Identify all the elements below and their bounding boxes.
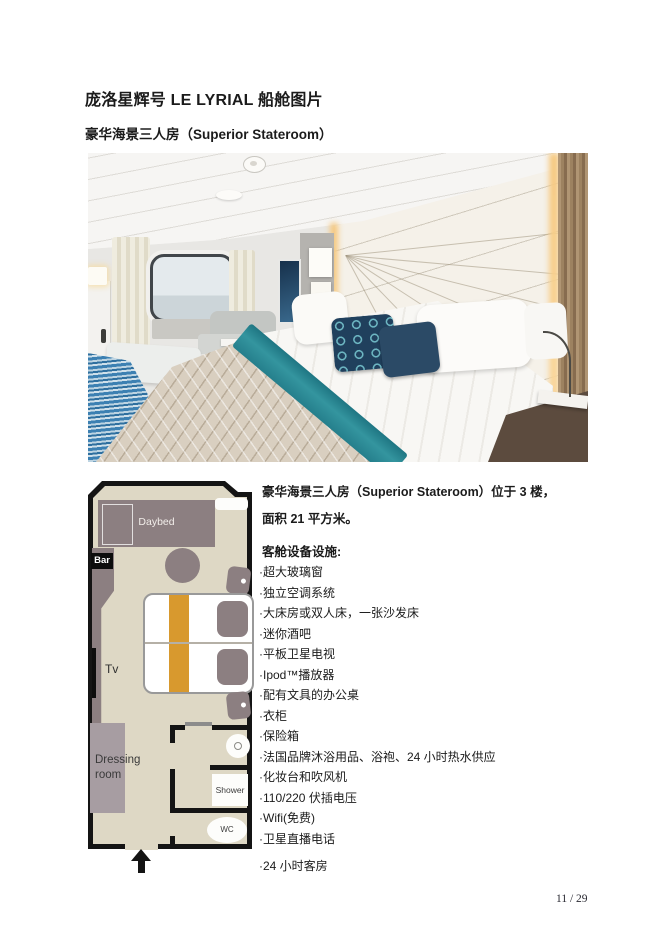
plan-wall [212, 725, 248, 730]
amenities-list: ·超大玻璃窗 ·独立空调系统 ·大床房或双人床，一张沙发床 ·迷你酒吧 ·平板卫… [259, 562, 599, 877]
plan-daybed: Daybed [98, 500, 215, 547]
cabin-photo [88, 153, 588, 462]
plan-door [185, 722, 212, 726]
plan-wall [170, 836, 175, 846]
plan-nightstand [226, 691, 252, 720]
plan-pillow [217, 649, 248, 685]
plan-wall [170, 725, 175, 743]
document-page: 庞洛星辉号 LE LYRIAL 船舱图片 豪华海景三人房（Superior St… [0, 0, 668, 945]
amenity-item: ·平板卫星电视 [259, 644, 599, 665]
amenity-item: ·衣柜 [259, 706, 599, 727]
plan-wall [175, 808, 248, 813]
amenities-heading: 客舱设备设施: [262, 541, 341, 560]
cabin-intro: 豪华海景三人房（Superior Stateroom）位于 3 楼， 面积 21… [262, 479, 592, 533]
plan-daybed-label: Daybed [98, 516, 215, 528]
plan-window [215, 498, 248, 510]
cabin-intro-line1: 豪华海景三人房（Superior Stateroom）位于 3 楼， [262, 479, 592, 506]
plan-wall [170, 769, 175, 813]
plan-nightstand [225, 566, 251, 596]
plan-bar-label: Bar [91, 553, 113, 569]
plan-tv-wall-mark [92, 648, 96, 698]
page-number: 11 / 29 [556, 893, 588, 905]
sunburst-line [346, 231, 570, 256]
amenity-item: ·Ipod™播放器 [259, 665, 599, 686]
amenity-item: ·独立空调系统 [259, 583, 599, 604]
sunburst-line [346, 255, 570, 276]
section-subtitle: 豪华海景三人房（Superior Stateroom） [85, 123, 333, 143]
amenity-item: ·卫星直播电话 [259, 829, 599, 850]
plan-dressing-label: Dressing room [95, 753, 161, 783]
amenity-item: ·配有文具的办公桌 [259, 685, 599, 706]
amenity-item: ·24 小时客房 [259, 856, 599, 877]
teal-pillow [378, 321, 441, 379]
cabin-floor-plan: Daybed Bar Tv Dressing room Shower WC [88, 481, 252, 873]
ceiling-light [216, 190, 242, 200]
amenity-item: ·大床房或双人床，一张沙发床 [259, 603, 599, 624]
plan-wall [210, 765, 248, 770]
plan-bed-divider [145, 642, 252, 644]
plan-tv-label: Tv [105, 662, 118, 676]
plan-sink [226, 734, 250, 758]
curtain [112, 237, 150, 351]
amenity-item: ·保险箱 [259, 726, 599, 747]
amenity-item: ·Wifi(免费) [259, 808, 599, 829]
plan-pillow [217, 601, 248, 637]
amenity-item: ·化妆台和吹风机 [259, 767, 599, 788]
entry-arrow-icon [138, 860, 145, 873]
plan-beds [143, 593, 254, 694]
amenity-item: ·110/220 伏插电压 [259, 788, 599, 809]
page-title: 庞洛星辉号 LE LYRIAL 船舱图片 [85, 86, 323, 110]
amenity-item: ·迷你酒吧 [259, 624, 599, 645]
plan-shower-label: Shower [212, 774, 248, 806]
wall-lamp [88, 267, 107, 285]
lamp-shade [309, 248, 332, 277]
smoke-detector [243, 156, 266, 173]
plan-wc-label: WC [207, 817, 247, 843]
plan-round-table [165, 548, 200, 583]
amenity-item: ·超大玻璃窗 [259, 562, 599, 583]
cabin-intro-line2: 面积 21 平方米。 [262, 506, 592, 533]
amenity-item: ·法国品牌沐浴用品、浴袍、24 小时热水供应 [259, 747, 599, 768]
